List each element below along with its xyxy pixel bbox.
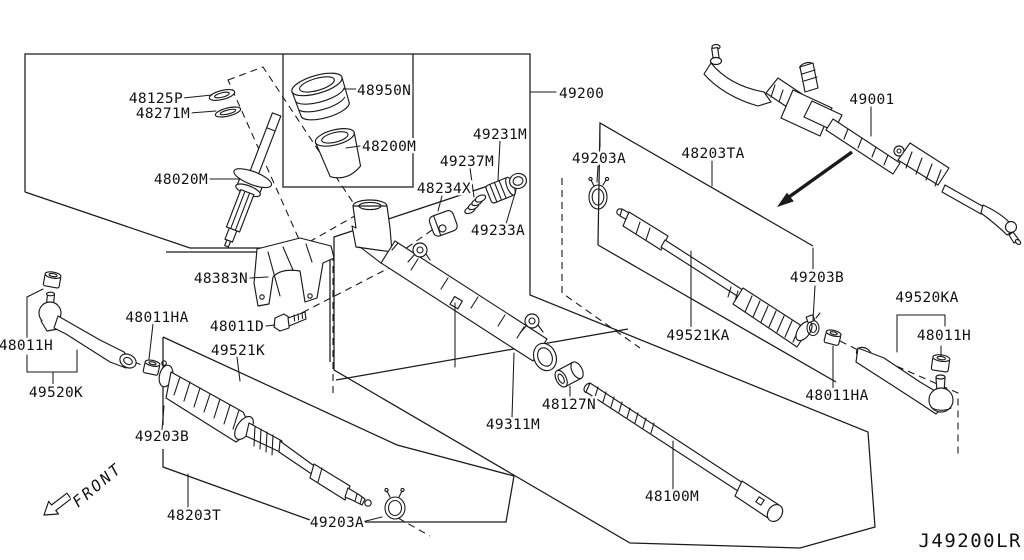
- part-label-49231M: 49231M: [473, 127, 527, 143]
- part-label-48125P: 48125P: [129, 91, 183, 107]
- part-label-48271M: 48271M: [136, 106, 190, 122]
- part-label-49520K: 49520K: [29, 385, 83, 401]
- part-label-49203A-bottom: 49203A: [310, 515, 364, 531]
- direction-arrow: [777, 152, 852, 207]
- part-label-49203B-left: 49203B: [135, 429, 189, 445]
- part-48127N-bushing: [553, 360, 586, 389]
- part-label-49203B-right: 49203B: [790, 270, 844, 286]
- part-label-48011HA-right: 48011HA: [805, 388, 868, 404]
- part-49520KA-tie-rod-end: [854, 345, 953, 414]
- part-49001-assembly: [704, 45, 1022, 246]
- part-48234X-damper: [428, 209, 459, 237]
- part-label-49200: 49200: [559, 86, 604, 102]
- part-label-48100M: 48100M: [645, 489, 699, 505]
- part-48011HA-left-nut: [143, 359, 161, 376]
- part-label-48127N: 48127N: [542, 397, 596, 413]
- part-48383N-heat-shield: [254, 238, 334, 306]
- part-48011HA-right-nut: [824, 329, 842, 346]
- part-label-48950N: 48950N: [357, 83, 411, 99]
- part-label-49520KA: 49520KA: [895, 290, 958, 306]
- parts-diagram-canvas: FRONT 48125P48271M48020M48950N48200M4923…: [0, 0, 1024, 560]
- part-label-49001: 49001: [849, 92, 894, 108]
- part-label-48200M: 48200M: [362, 139, 416, 155]
- part-48271M-snap-ring: [214, 105, 241, 119]
- part-label-48020M: 48020M: [154, 172, 208, 188]
- part-label-48011D: 48011D: [210, 319, 264, 335]
- part-label-48011H-left: 48011H: [0, 338, 53, 354]
- part-label-49233A: 49233A: [471, 223, 525, 239]
- part-48011D-bolt: [274, 312, 306, 331]
- part-label-49203A-right: 49203A: [572, 151, 626, 167]
- part-label-49311M: 49311M: [486, 417, 540, 433]
- exploded-parts-diagram: FRONT 48125P48271M48020M48950N48200M4923…: [0, 0, 1024, 560]
- part-label-48203T: 48203T: [167, 508, 221, 524]
- part-49520K-tie-rod-end: [39, 271, 139, 371]
- part-label-48203TA: 48203TA: [681, 146, 744, 162]
- part-label-49237M: 49237M: [440, 154, 494, 170]
- part-label-48011HA-left: 48011HA: [125, 310, 188, 326]
- part-49203A-left-clamp: [385, 488, 405, 519]
- part-48200M-cover: [314, 125, 365, 182]
- part-label-48011H-right: 48011H: [917, 328, 971, 344]
- part-label-48234X: 48234X: [417, 181, 471, 197]
- front-arrow-icon: [44, 493, 71, 515]
- part-label-49521KA: 49521KA: [666, 328, 729, 344]
- part-48950N-cover: [289, 69, 351, 125]
- diagram-code: J49200LR: [918, 530, 1022, 552]
- part-label-48383N: 48383N: [194, 271, 248, 287]
- front-label: FRONT: [69, 459, 126, 511]
- part-label-49521K: 49521K: [211, 343, 265, 359]
- front-indicator: FRONT: [44, 459, 126, 515]
